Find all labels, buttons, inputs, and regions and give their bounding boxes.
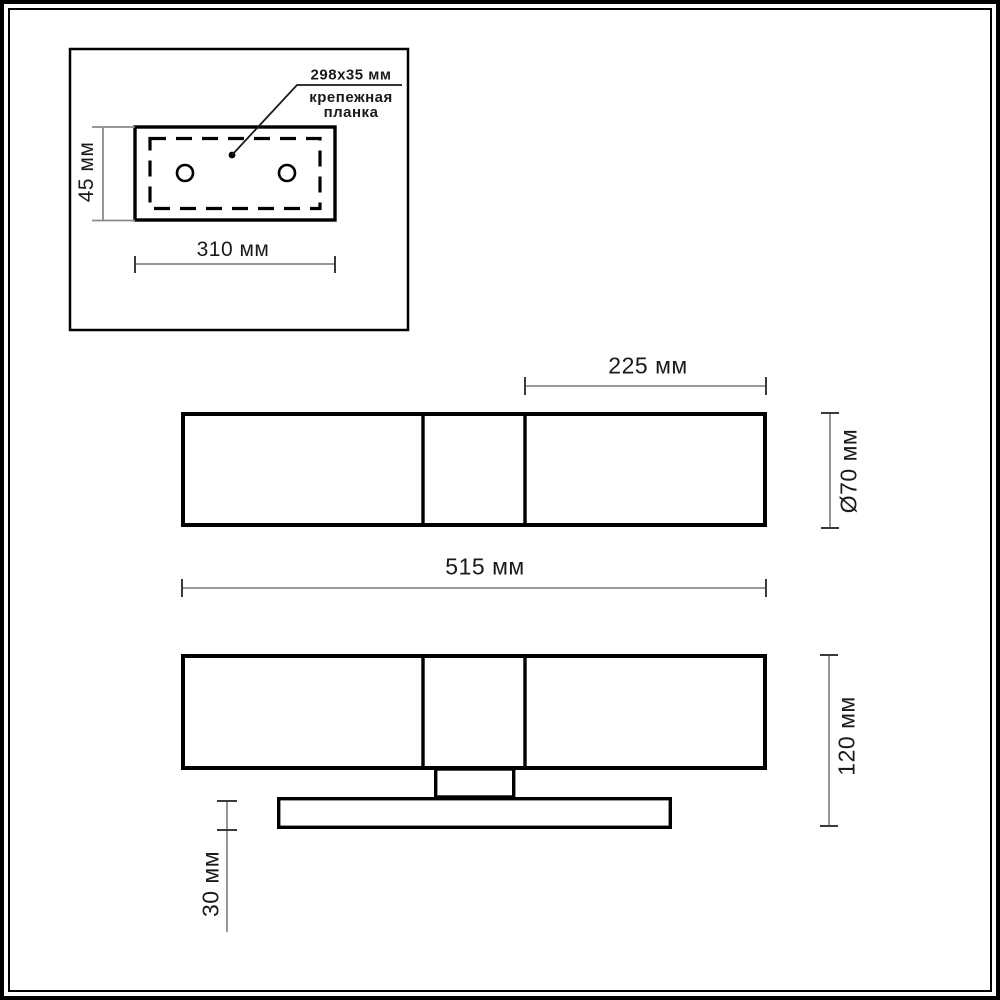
dim-225-lines (525, 377, 766, 395)
screw-hole-right (279, 165, 295, 181)
screw-hole-left (177, 165, 193, 181)
mounting-plate-outline (135, 127, 335, 220)
front-view-body (183, 414, 765, 525)
dim-30-label: 30 мм (198, 851, 225, 917)
dim-225-label: 225 мм (608, 353, 687, 380)
dim-120-label: 120 мм (834, 696, 861, 775)
technical-drawing-page: 298x35 мм крепежная планка 45 мм 310 мм … (0, 0, 1000, 1000)
dim-310-label: 310 мм (197, 238, 270, 262)
dim-515-lines (182, 579, 766, 597)
plate-name-label: крепежная планка (309, 90, 393, 120)
plate-size-label: 298x35 мм (311, 67, 392, 84)
side-view-stem (436, 769, 514, 797)
side-view-base-plate (279, 799, 671, 828)
dim-45-label: 45 мм (75, 142, 99, 203)
dim-515-label: 515 мм (445, 554, 524, 581)
plate-name-line1: крепежная (309, 90, 393, 105)
dim-70-label: Ø70 мм (836, 429, 863, 514)
side-view-body (183, 656, 765, 768)
plate-name-line2: планка (309, 105, 393, 120)
